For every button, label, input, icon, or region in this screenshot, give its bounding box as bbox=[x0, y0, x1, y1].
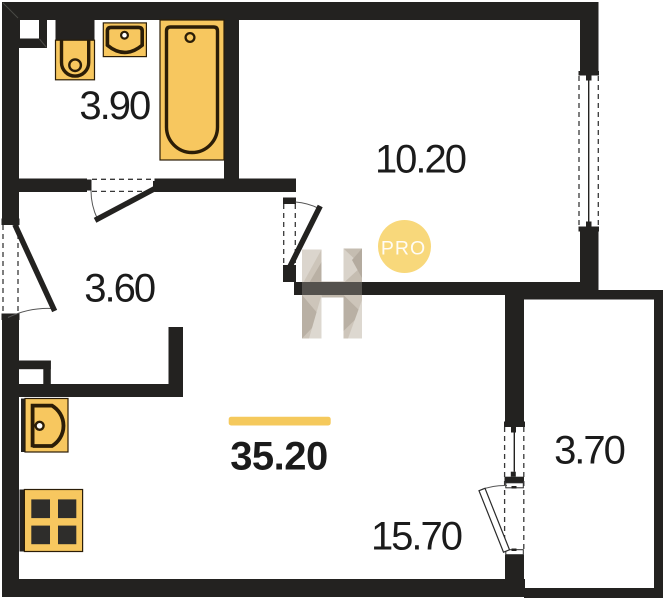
svg-text:10.20: 10.20 bbox=[375, 137, 466, 181]
svg-text:35.20: 35.20 bbox=[230, 434, 328, 478]
svg-text:3.60: 3.60 bbox=[84, 267, 155, 311]
svg-text:3.70: 3.70 bbox=[554, 429, 625, 473]
svg-text:3.90: 3.90 bbox=[79, 84, 150, 128]
svg-text:15.70: 15.70 bbox=[371, 514, 462, 558]
svg-text:PRO: PRO bbox=[381, 238, 426, 260]
